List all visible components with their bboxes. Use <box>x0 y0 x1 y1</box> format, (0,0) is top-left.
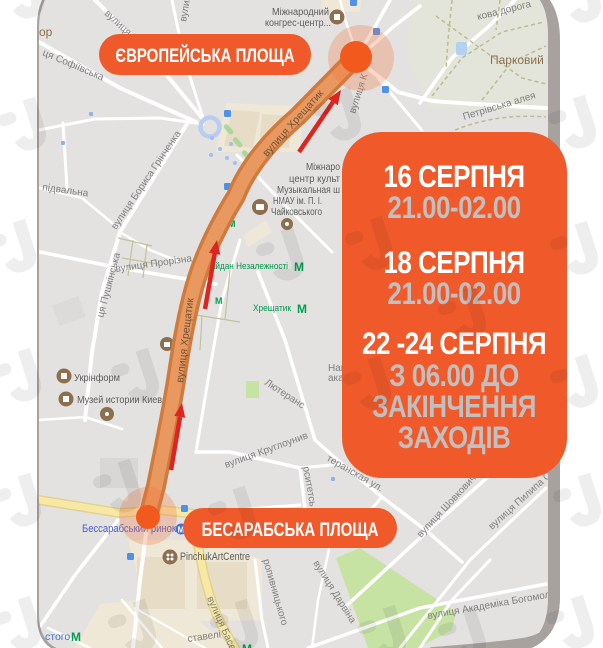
svg-text:Чайковського: Чайковського <box>271 207 322 218</box>
svg-text:ор: ор <box>39 25 53 39</box>
svg-text:Майдан Незалежності: Майдан Незалежності <box>204 261 288 272</box>
svg-text:ЄВРОПЕЙСЬКА ПЛОЩА: ЄВРОПЕЙСЬКА ПЛОЩА <box>115 44 295 66</box>
svg-text:22 -24 СЕРПНЯ: 22 -24 СЕРПНЯ <box>362 327 546 362</box>
svg-text:M: M <box>71 630 81 644</box>
svg-text:Музыкальная ш: Музыкальная ш <box>277 185 340 196</box>
svg-text:конгрес-центр...: конгрес-центр... <box>265 18 331 29</box>
svg-text:Міжнародний: Міжнародний <box>272 7 329 18</box>
svg-text:ЗАХОДІВ: ЗАХОДІВ <box>398 421 511 456</box>
svg-text:центр культ: центр культ <box>289 174 340 185</box>
svg-text:Хрещатик: Хрещатик <box>253 303 292 314</box>
svg-text:стого: стого <box>45 631 70 643</box>
svg-text:18 СЕРПНЯ: 18 СЕРПНЯ <box>383 246 524 281</box>
svg-text:16 СЕРПНЯ: 16 СЕРПНЯ <box>383 160 524 195</box>
svg-text:PinchukArtCentre: PinchukArtCentre <box>180 551 250 563</box>
svg-text:Міжнаро: Міжнаро <box>306 162 340 173</box>
svg-text:ЗАКІНЧЕННЯ: ЗАКІНЧЕННЯ <box>372 390 536 425</box>
svg-text:M: M <box>215 296 223 306</box>
svg-text:НМАУ ім. П. І.: НМАУ ім. П. І. <box>273 196 322 207</box>
svg-text:З 06.00 ДО: З 06.00 ДО <box>389 359 519 394</box>
svg-text:21.00-02.00: 21.00-02.00 <box>387 191 520 226</box>
svg-text:Парковий мі: Парковий мі <box>490 53 558 67</box>
svg-text:M: M <box>297 302 307 316</box>
